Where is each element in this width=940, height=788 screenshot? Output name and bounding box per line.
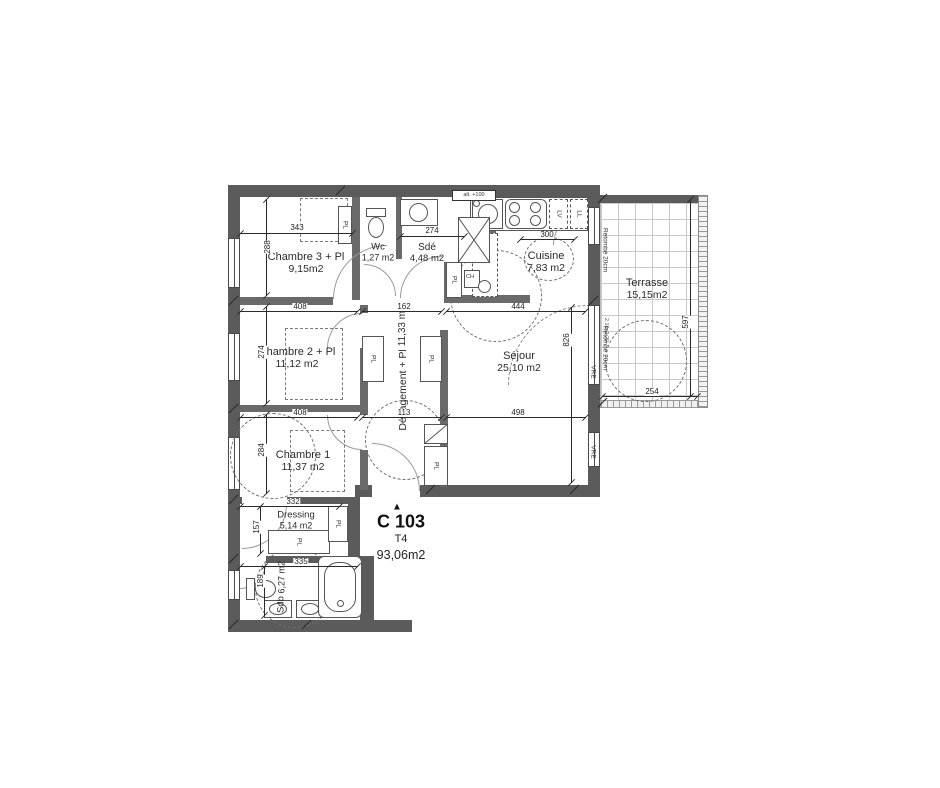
dimension-label: 284 — [257, 443, 267, 456]
room-label-dressing: Dressing 5,14 m2 — [277, 510, 315, 531]
dimension-label: 597 — [681, 315, 691, 328]
dimension-line — [240, 566, 358, 567]
room-label-chambre2: Chambre 2 + Pl 11,12 m2 — [259, 346, 336, 370]
room-label-chambre3: Chambre 3 + Pl 9,15m2 — [268, 251, 345, 275]
dimension-label: 189 — [256, 574, 266, 587]
closet-label: PL — [370, 355, 377, 363]
dimension-label: 826 — [562, 333, 572, 346]
dimension-line — [240, 417, 358, 418]
dimension-label: 343 — [289, 224, 304, 232]
floor-plan: Chambre 3 + Pl 9,15m2 Wc 1,27 m2 Sdé 4,4… — [0, 0, 940, 788]
boiler-label: CH — [466, 274, 474, 280]
dishwasher-label: LV — [556, 210, 563, 217]
dimension-line — [240, 506, 340, 507]
dimension-label: 288 — [263, 240, 273, 253]
washbasin-bowl — [301, 603, 319, 615]
washing-machine-label: LL — [576, 210, 583, 217]
dimension-line — [690, 199, 691, 397]
ceiling-drop-annotation: Retombé 20cm — [602, 228, 609, 272]
burner — [509, 215, 520, 226]
dimension-label: 498 — [510, 409, 525, 417]
burner — [530, 202, 541, 213]
dimension-label: 274 — [424, 227, 439, 235]
dimension-label: 444 — [510, 303, 525, 311]
dimension-label: 162 — [396, 303, 411, 311]
room-label-sdb: Sdb 6,27 m2 — [276, 561, 287, 613]
wall — [348, 497, 360, 559]
dimension-line — [240, 311, 358, 312]
room-label-cuisine: Cuisine 7,83 m2 — [527, 250, 565, 274]
closet-label: PL — [335, 520, 342, 528]
dimension-label: 408 — [292, 409, 307, 417]
wall — [228, 620, 412, 632]
dimension-label: 408 — [292, 303, 307, 311]
dimension-label: 254 — [644, 388, 659, 396]
dimension-line — [446, 417, 586, 418]
room-label-wc: Wc 1,27 m2 — [362, 242, 395, 263]
closet-label: PL — [296, 538, 303, 546]
dimension-label: 113 — [397, 409, 412, 417]
dimension-label: 274 — [257, 345, 267, 358]
wall — [588, 385, 600, 432]
wall — [240, 297, 333, 305]
room-label-sejour: Séjour 25,10 m2 — [497, 350, 541, 374]
window — [588, 207, 600, 245]
shower-symbol — [458, 217, 490, 263]
dimension-line — [362, 311, 442, 312]
dimension-label: 157 — [252, 520, 262, 533]
dimension-line — [400, 236, 465, 237]
terrace-railing — [698, 195, 708, 408]
closet-label: PL — [433, 462, 440, 470]
wall — [360, 450, 368, 490]
closet-label: PL — [342, 221, 349, 229]
toilet-tank — [366, 208, 386, 217]
ceiling-drop-annotation: Retombé 20cm — [602, 326, 609, 370]
dimension-line — [446, 311, 586, 312]
dimension-line — [362, 417, 442, 418]
closet-label: PL — [451, 276, 458, 284]
window — [228, 570, 240, 600]
vre-annotation: VRE — [590, 445, 597, 458]
level-annotation: alt. +100 — [452, 190, 496, 201]
vre-annotation: VRE — [590, 365, 597, 378]
burner — [530, 215, 541, 226]
window — [228, 238, 240, 288]
unit-code: C 103 — [377, 512, 425, 533]
door-swing-arc — [364, 264, 396, 296]
dimension-line — [240, 233, 353, 234]
dimension-label: 300 — [539, 231, 554, 239]
dimension-line — [520, 239, 575, 240]
dimension-line — [602, 396, 698, 397]
room-label-terrasse: Terrasse 15,15m2 — [626, 277, 668, 301]
kitchen-sink-tap — [473, 200, 480, 207]
toilet-bowl — [368, 217, 384, 238]
burner — [509, 202, 520, 213]
water-heater-symbol — [478, 280, 491, 293]
unit-area: 93,06m2 — [377, 548, 426, 562]
closet-label: PL — [428, 355, 435, 363]
toilet-tank — [246, 578, 255, 600]
unit-type: T4 — [395, 533, 408, 545]
wall — [588, 185, 600, 207]
wall — [228, 185, 600, 197]
shoe-rack — [424, 424, 448, 444]
dimension-label: 332 — [285, 498, 300, 506]
window — [228, 333, 240, 381]
washbasin-bowl — [409, 203, 428, 222]
room-label-sde: Sdé 4,48 m2 — [410, 242, 444, 264]
dimension-label: 335 — [293, 558, 308, 566]
bathtub-drain — [337, 600, 344, 607]
room-label-chambre1: Chambre 1 11,37 m2 — [276, 449, 330, 473]
